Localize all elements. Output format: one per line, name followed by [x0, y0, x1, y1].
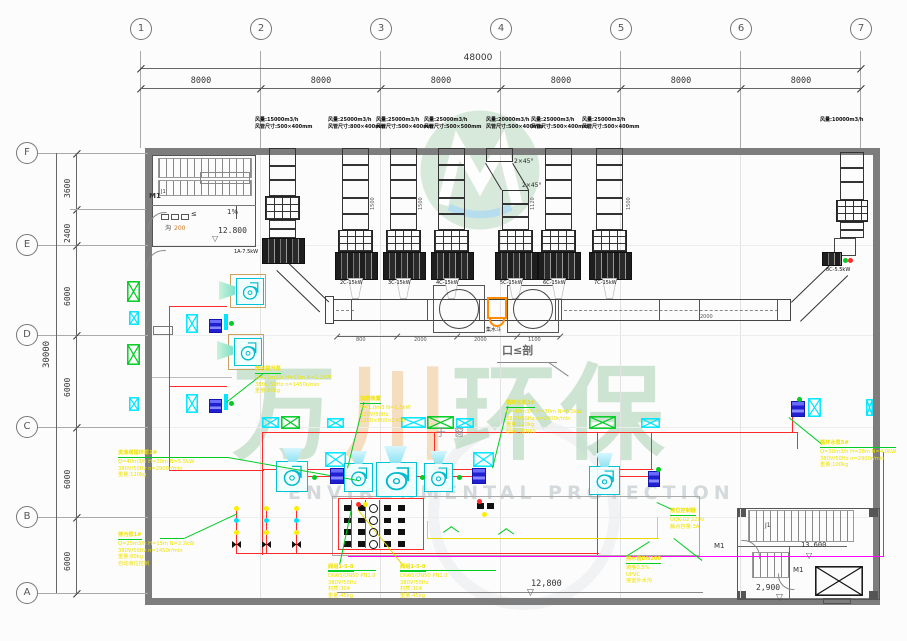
duct-segment [342, 214, 369, 230]
valve-dot [229, 401, 234, 406]
annotation-line: 重量:120kg [506, 422, 582, 429]
duct-joint [659, 300, 660, 320]
slope-symbol: ≤ [191, 211, 197, 218]
grid-col-bubble: 4 [490, 18, 512, 40]
annotation-line: Q=40m3/h H=30m N=5.5kW [506, 409, 582, 416]
dim-line-total-v [56, 153, 57, 593]
annotation-title: 排水管DN100 [626, 556, 661, 564]
duct-segment [596, 198, 623, 214]
crossed-box-symbol [456, 418, 474, 428]
pipe-red [169, 306, 170, 471]
annotation-title: 循环水泵5# [820, 440, 849, 448]
valve-dot [294, 530, 299, 535]
valve-dot [482, 512, 487, 517]
grid-row-line [38, 245, 148, 246]
annotation-line: 自动液位控制 [118, 561, 194, 568]
annotation-line: 材质:304 [400, 586, 448, 593]
grid-col-line [860, 51, 861, 148]
annotation-title: 阀组1-5-9 [400, 564, 426, 572]
stair-flight [748, 510, 854, 542]
stack-ductsize-label: 风管尺寸:500×500mm [424, 125, 481, 130]
grid-col-bubble: 3 [370, 18, 392, 40]
level-marker: ▽ [212, 235, 218, 243]
pipe-red [365, 500, 366, 548]
dim-line-rows [76, 153, 77, 593]
duct-joint [555, 300, 556, 320]
grid-row-bubble: E [16, 234, 38, 256]
fan-tag: 6C-15kW [543, 281, 566, 286]
valve-dot [294, 518, 299, 523]
stair-tag: J1 [161, 190, 166, 195]
duct-segment [269, 166, 296, 180]
elbow-angle: 2×45° [522, 183, 541, 189]
grid-col-bubble: 6 [730, 18, 752, 40]
pipe-red [170, 386, 227, 387]
slope-label: 1% [227, 209, 238, 216]
room-divider [152, 205, 256, 206]
exhaust-fan-unit [262, 238, 305, 264]
fan-tag: 4C-15kW [436, 281, 459, 286]
valve-ring [369, 516, 378, 525]
annotation-title: 排污泵1# [118, 532, 142, 540]
stray-text: 窗 [454, 429, 464, 439]
duct-centerline [564, 310, 778, 311]
dim-label: 2,900 [756, 584, 780, 592]
dim-bay-width: 8000 [191, 77, 211, 86]
crossed-box-symbol [473, 452, 494, 467]
pipe-red [237, 553, 599, 554]
spec-annotation: 排污泵1#Q=25m3/h H=15m N=2.2kW380V/50Hz n=1… [118, 532, 194, 568]
filter-section [386, 230, 421, 252]
stair-tag: J1 [765, 523, 771, 529]
drain-label: 集水斗 [486, 328, 501, 333]
stack-dim: 1500 [371, 197, 376, 210]
grid-col-line [620, 51, 621, 148]
duct-segment [545, 180, 572, 198]
grid-col-bubble: 1 [130, 18, 152, 40]
crossed-box-symbol [327, 418, 344, 428]
floor-drain [181, 214, 189, 220]
annotation-line: Q=40m3/h H=30m N=5.5kW [118, 459, 194, 466]
duct-joint [479, 300, 480, 320]
grid-col-line [740, 51, 741, 148]
valve-dot [264, 506, 269, 511]
grid-col-bubble: 5 [610, 18, 632, 40]
duct-joint [777, 300, 778, 320]
duct-segment [438, 165, 465, 180]
stack-dim: 1500 [627, 197, 632, 210]
stack-dim: 1500 [419, 197, 424, 210]
pipe-red [797, 432, 798, 449]
grid-row-bubble: B [16, 506, 38, 528]
stack-airflow-label: 风量:25000m3/h [531, 118, 574, 123]
annotation-line: 1200×800×1400 [360, 418, 411, 425]
duct-segment [545, 214, 572, 230]
grid-row-line [38, 427, 148, 428]
dim-row-height: 6000 [64, 378, 72, 397]
exhaust-fan-unit [822, 252, 842, 266]
annotation-line: 接室外水沟 [626, 578, 661, 585]
spec-annotation: 洗涤塔循环泵1#Q=40m3/h H=30m N=5.5kW380V/50Hz … [118, 450, 194, 479]
pipe-red [262, 432, 263, 555]
drain-box [487, 297, 507, 319]
duct-segment [269, 229, 296, 238]
annotation-line: DN65/DN50 PN1.0 [328, 573, 376, 580]
bottom-dim-line [337, 592, 703, 593]
annotation-line: V=1.0m3 N=1.5kW [360, 405, 411, 412]
pipe-magenta [348, 556, 884, 557]
spec-annotation: 循环水泵3#Q=40m3/h H=30m N=5.5kW380V/50Hz n=… [506, 400, 582, 436]
circulation-pump [648, 471, 660, 487]
dim-bay-width: 8000 [551, 77, 571, 86]
fan-tag: 7C-15kW [594, 281, 617, 286]
valve-dot [457, 475, 462, 480]
dim-row-height: 6000 [64, 470, 72, 489]
grid-sub-row [70, 209, 146, 210]
pipe-stub-cyan [224, 314, 228, 330]
duct-segment [840, 152, 864, 168]
valve-dot [797, 397, 802, 402]
stack-dim: 1120 [531, 197, 536, 210]
duct-segment [390, 214, 417, 230]
valve-dot [848, 258, 853, 263]
annotation-line: 220V/50Hz [360, 412, 411, 419]
crossed-box-symbol [262, 417, 279, 428]
valve-dot [363, 502, 368, 507]
stack-airflow-label: 风量:25000m3/h [424, 118, 467, 123]
scrubber-fan-unit [236, 278, 264, 305]
exhaust-fan-unit [383, 252, 426, 280]
valve-dot [294, 506, 299, 511]
duct-segment [438, 148, 465, 165]
crossed-box-symbol [281, 416, 300, 429]
grid-row-bubble: F [16, 142, 38, 164]
room-divider [789, 546, 790, 600]
spec-annotation: 阀组1-5-9DN65/DN50 PN1.0380V/50Hz材质:304重量:… [400, 564, 448, 600]
duct-segment [840, 230, 864, 238]
round-damper [439, 289, 479, 329]
level-marker: ▽ [527, 589, 534, 598]
level-marker: ▽ [806, 552, 812, 560]
pipe-yellow [427, 521, 428, 539]
duct-segment [438, 180, 465, 198]
annotation-line: 重量:100kg [820, 462, 896, 469]
duct-segment [342, 148, 369, 165]
level-label: 12.800 [218, 227, 247, 235]
trench-width: 200 [174, 226, 185, 232]
circulation-pump [330, 468, 344, 484]
small-equipment [153, 326, 173, 335]
dim-line-bays [141, 88, 861, 89]
pipe-yellow [657, 517, 658, 539]
crossed-box-symbol [127, 344, 140, 365]
duct-dim: 2000 [700, 315, 713, 320]
duct-segment [390, 148, 417, 165]
spec-annotation: 废水提升泵Q=25m3/h H=15m N=2.2kW380V/50Hz n=1… [255, 366, 331, 395]
door-sill [823, 598, 851, 604]
grid-col-bubble: 7 [850, 18, 872, 40]
duct-segment [502, 217, 529, 230]
valve-dot [264, 530, 269, 535]
crossed-box-symbol [129, 311, 139, 325]
section-label: 口≤剖 [502, 345, 533, 356]
duct-segment [596, 165, 623, 180]
valve-dot [234, 530, 239, 535]
dim-row-height: 2400 [64, 224, 72, 243]
dim-row-height: 3600 [64, 179, 72, 198]
spec-annotation: 加药装置V=1.0m3 N=1.5kW220V/50Hz1200×800×140… [360, 396, 411, 425]
annotation-title: 循环水泵3# [506, 400, 535, 408]
exhaust-fan-unit [538, 252, 581, 280]
annotation-title: 废水提升泵 [255, 366, 281, 374]
annotation-line: Q=25m3/h H=15m N=2.2kW [118, 541, 194, 548]
dim-total-width: 48000 [464, 54, 493, 63]
annotation-leader [788, 417, 821, 444]
fan-tag: 3C-15kW [388, 281, 411, 286]
crossed-box-symbol [866, 399, 873, 416]
duct-segment [545, 198, 572, 214]
pipe-red [453, 476, 473, 477]
valve-ring [369, 540, 378, 549]
elbow-angle: 2×45° [514, 159, 533, 165]
fan-tag: 2C-15kW [340, 281, 363, 286]
annotation-line: 材质:304 [328, 586, 376, 593]
crossed-box-symbol [641, 418, 660, 428]
spec-annotation: 阀组1-5-8DN65/DN50 PN1.0380V/50Hz材质:304重量:… [328, 564, 376, 600]
grid-row-line [38, 335, 148, 336]
duct-segment [486, 148, 513, 162]
stray-text: 于 [436, 429, 446, 439]
grid-row-line [38, 517, 148, 518]
stack-airflow-label: 风量:15000m3/h [255, 118, 298, 123]
circulation-pump [209, 319, 222, 333]
annotation-title: 液位控制器 [670, 508, 696, 516]
duct-segment [596, 148, 623, 165]
filter-section [836, 200, 868, 222]
exhaust-fan-unit [495, 252, 538, 280]
pipe-red [651, 432, 652, 469]
duct-joint [351, 300, 352, 320]
circulation-pump [209, 399, 222, 413]
trench-label: 沟 [165, 226, 171, 232]
duct-segment [390, 180, 417, 198]
annotation-line: Q=30m3/h H=28m N=4.0kW [820, 449, 896, 456]
grid-col-line [260, 51, 261, 148]
dim-bay-width: 8000 [431, 77, 451, 86]
filter-section [338, 230, 373, 252]
filter-section [434, 230, 469, 252]
crossed-box-symbol [325, 452, 346, 467]
dim-bay-width: 8000 [791, 77, 811, 86]
exhaust-fan-unit [589, 252, 632, 280]
circulation-pump [472, 468, 486, 484]
fan-tag: 1A-7.5kW [234, 250, 258, 255]
crossed-box-symbol [186, 314, 198, 333]
annotation-line: 重量:45kg [400, 593, 448, 600]
door-tag: M1 [149, 193, 161, 200]
duct-segment [342, 198, 369, 214]
duct-dim: 1100 [528, 338, 541, 343]
trench-line [152, 377, 232, 378]
drain-semicircle [489, 318, 505, 327]
pipe-red [379, 500, 380, 548]
duct-segment [438, 198, 465, 214]
diag-duct [285, 260, 329, 303]
dim-line-total [141, 68, 861, 69]
door-tag: M1 [793, 567, 804, 574]
grid-row-line [38, 153, 148, 154]
dim-row-height: 6000 [64, 287, 72, 306]
filter-section [265, 196, 300, 220]
crossed-box-symbol [129, 397, 139, 411]
valve-ring [369, 528, 378, 537]
duct-joint [427, 300, 428, 320]
crossed-box-symbol [186, 394, 198, 413]
round-damper [513, 289, 553, 329]
cad-drawing-canvas: ENVIRONMENTAL PROTECTION 万川环保1234567FEDC… [0, 0, 907, 641]
scrubber-fan-unit [424, 463, 453, 492]
pipe-red [170, 306, 227, 307]
grid-col-line [500, 51, 501, 148]
valve-dot [234, 518, 239, 523]
duct-segment [840, 222, 864, 230]
annotation-line: 坡度0.5% [626, 565, 661, 572]
duct-segment [269, 148, 296, 166]
valve-dot [264, 518, 269, 523]
duct-segment [502, 190, 529, 204]
filter-section [592, 230, 627, 252]
floor-drain [171, 214, 179, 220]
duct-segment [342, 180, 369, 198]
stack-ductsize-label: 风管尺寸:500×400mm [255, 125, 312, 130]
grid-row-bubble: C [16, 416, 38, 438]
annotation-title: 洗涤塔循环泵1# [118, 450, 157, 458]
duct-segment [596, 214, 623, 230]
grid-col-line [140, 51, 141, 148]
grid-row-bubble: D [16, 324, 38, 346]
crossed-box-symbol [808, 398, 821, 417]
stack-airflow-label: 风量:25000m3/h [582, 118, 625, 123]
annotation-line: UQK-02 220V [670, 517, 704, 524]
duct-segment [840, 168, 864, 182]
scrubber-fan-unit [234, 338, 262, 366]
scrubber-fan-unit [589, 466, 620, 495]
duct-segment [269, 220, 296, 229]
duct-segment [840, 182, 864, 200]
crossed-box-symbol [589, 416, 616, 429]
exhaust-fan-unit [431, 252, 474, 280]
grid-row-line [38, 593, 148, 594]
annotation-line: Q=25m3/h H=15m N=2.2kW [255, 375, 331, 382]
diag-duct [800, 275, 848, 322]
annotation-title: 阀组1-5-8 [328, 564, 354, 572]
valve-dot [656, 467, 661, 472]
door-tag: M1 [714, 543, 725, 550]
annotation-line: 重量:45kg [328, 593, 376, 600]
stack-airflow-label: 风量:25000m3/h [328, 118, 371, 123]
stack-airflow-label: 风量:25000m3/h [376, 118, 419, 123]
valve-dot [312, 475, 317, 480]
spec-annotation: 循环水泵5#Q=30m3/h H=28m N=4.0kW380V/50Hz n=… [820, 440, 896, 469]
duct-segment [390, 165, 417, 180]
dim-bay-width: 8000 [671, 77, 691, 86]
fan-tag: 5C-15kW [500, 281, 523, 286]
stack-airflow-label: 风量:20000m3/h [486, 118, 529, 123]
grid-row-bubble: A [16, 582, 38, 604]
duct-segment [596, 180, 623, 198]
annotation-line: 重量:80kg [118, 554, 194, 561]
duct-dim: 2000 [474, 338, 487, 343]
valve-dot [420, 475, 425, 480]
filter-section [541, 230, 576, 252]
grid-col-line [380, 51, 381, 148]
duct-dim-line [337, 336, 560, 337]
crossed-box-symbol [815, 566, 863, 596]
duct-segment [269, 180, 296, 196]
spec-annotation: 液位控制器UQK-02 220V触点容量:3A [670, 508, 704, 530]
pipe-yellow [428, 538, 659, 539]
duct-segment [545, 148, 572, 165]
dim-bay-width: 8000 [311, 77, 331, 86]
duct-joint [433, 300, 434, 320]
duct-segment [390, 198, 417, 214]
dim-total-height: 30000 [43, 341, 52, 368]
duct-dim: 800 [356, 338, 366, 343]
valve-dot [477, 499, 482, 504]
duct-segment [502, 204, 529, 217]
level-label: 13.600 [801, 542, 826, 549]
circulation-pump [791, 401, 805, 417]
stack-ductsize-label: 风管尺寸:500×400mm [582, 125, 639, 130]
annotation-line: 重量:120kg [118, 472, 194, 479]
duct-segment [342, 165, 369, 180]
annotation-line: 触点容量:3A [670, 524, 704, 531]
spec-annotation: 排水管DN100坡度0.5%UPVC接室外水沟 [626, 556, 661, 585]
valve-dot [229, 321, 234, 326]
duct-dim: 2000 [414, 338, 427, 343]
duct-joint [561, 300, 562, 320]
duct-segment [545, 165, 572, 180]
annotation-line: DN65/DN50 PN1.0 [400, 573, 448, 580]
pipe-red [620, 476, 649, 477]
grid-col-bubble: 2 [250, 18, 272, 40]
level-marker: ▽ [776, 594, 783, 603]
valve-dot [356, 502, 361, 507]
valve-ring [369, 504, 378, 513]
stack-ductsize-label: 风管尺寸:500×400mm [486, 125, 543, 130]
level-label: 12,800 [531, 580, 562, 589]
exhaust-fan-unit [335, 252, 378, 280]
diag-duct [276, 270, 320, 313]
annotation-line: 配阀门DN65 [506, 429, 582, 436]
stair-rail [200, 172, 250, 184]
pipe-red [351, 500, 352, 548]
stack-airflow-label: 风量:10000m3/h [820, 118, 863, 123]
crossed-box-symbol [127, 281, 140, 302]
valve-dot [234, 506, 239, 511]
annotation-line: 重量:80kg [255, 388, 331, 395]
dim-row-height: 6000 [64, 552, 72, 571]
fan-tag: 8C-5.5kW [826, 268, 850, 273]
duct-segment [438, 214, 465, 230]
scrubber-fan-unit [376, 462, 417, 497]
annotation-title: 加药装置 [360, 396, 381, 404]
filter-section [498, 230, 533, 252]
